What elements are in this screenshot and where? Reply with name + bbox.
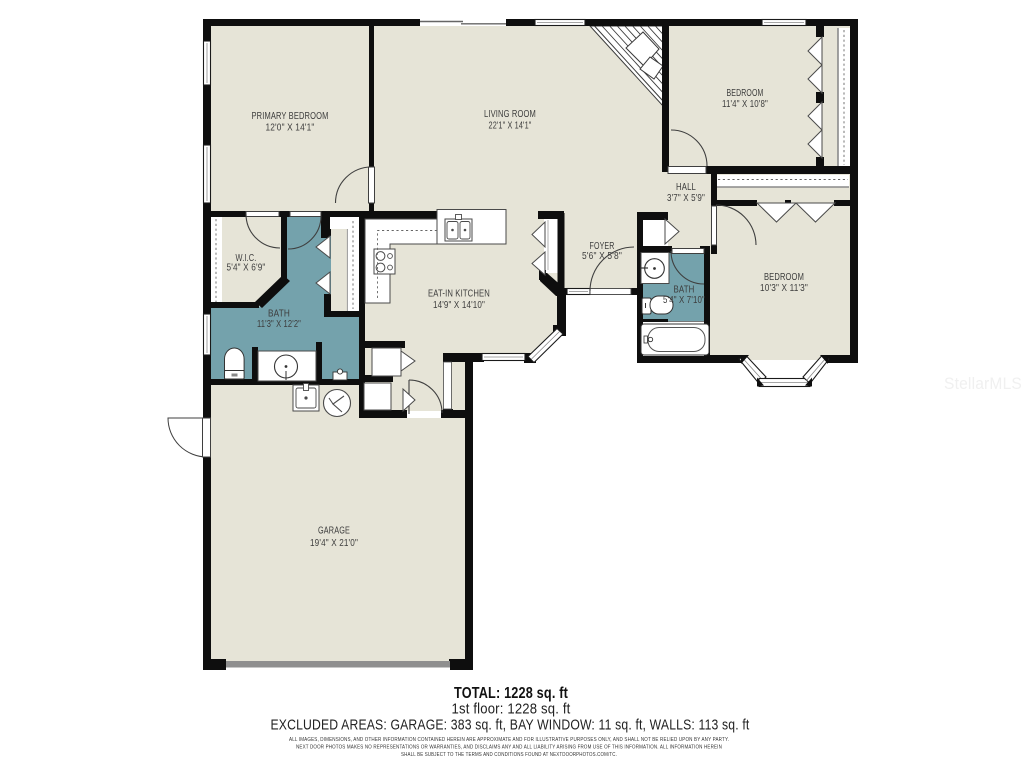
svg-text:22'1" X 14'1": 22'1" X 14'1" [489, 120, 532, 132]
svg-text:PRIMARY BEDROOM: PRIMARY BEDROOM [252, 110, 329, 122]
svg-text:EAT-IN KITCHEN: EAT-IN KITCHEN [428, 288, 490, 300]
svg-text:11'4" X 10'8": 11'4" X 10'8" [722, 98, 768, 110]
svg-text:11'3" X 12'2": 11'3" X 12'2" [257, 318, 301, 330]
svg-text:5'4" X 7'10": 5'4" X 7'10" [663, 294, 705, 306]
svg-text:StellarMLS: StellarMLS [944, 374, 1022, 393]
svg-text:10'3" X 11'3": 10'3" X 11'3" [760, 282, 808, 294]
svg-text:5'4" X 6'9": 5'4" X 6'9" [227, 262, 266, 274]
svg-text:EXCLUDED AREAS: GARAGE: 383 sq: EXCLUDED AREAS: GARAGE: 383 sq. ft, BAY … [271, 718, 750, 734]
svg-text:GARAGE: GARAGE [318, 525, 350, 537]
svg-text:5'6" X 5'8": 5'6" X 5'8" [582, 250, 622, 262]
svg-text:ALL IMAGES, DIMENSIONS, AND OT: ALL IMAGES, DIMENSIONS, AND OTHER INFORM… [289, 737, 729, 743]
svg-text:SHALL BE SUBJECT TO THE TERMS: SHALL BE SUBJECT TO THE TERMS AND CONDIT… [401, 752, 617, 758]
svg-text:19'4" X 21'0": 19'4" X 21'0" [310, 537, 358, 549]
svg-text:14'9" X 14'10": 14'9" X 14'10" [433, 299, 485, 311]
svg-text:12'0" X 14'1": 12'0" X 14'1" [266, 122, 315, 134]
svg-text:NEXT DOOR PHOTOS MAKES NO REPR: NEXT DOOR PHOTOS MAKES NO REPRESENTATION… [296, 745, 722, 751]
svg-text:TOTAL: 1228 sq. ft: TOTAL: 1228 sq. ft [454, 685, 568, 702]
svg-text:LIVING ROOM: LIVING ROOM [484, 108, 536, 120]
svg-text:3'7" X 5'9": 3'7" X 5'9" [667, 192, 705, 204]
svg-text:1st floor: 1228 sq. ft: 1st floor: 1228 sq. ft [452, 702, 571, 718]
